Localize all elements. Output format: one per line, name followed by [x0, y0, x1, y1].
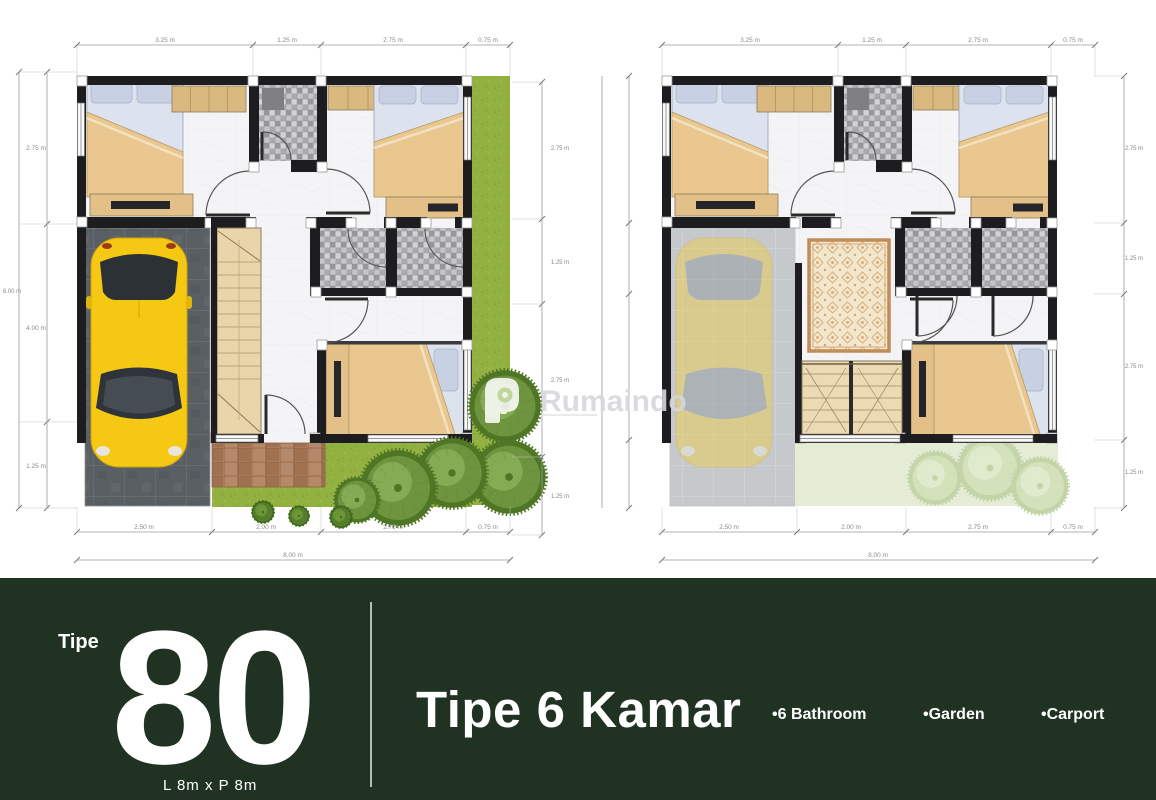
- svg-text:0.75 m: 0.75 m: [1063, 524, 1083, 531]
- svg-text:Rumaindo: Rumaindo: [540, 385, 687, 418]
- svg-text:2.75 m: 2.75 m: [383, 37, 403, 44]
- svg-text:0.75 m: 0.75 m: [478, 37, 498, 44]
- svg-text:2.75 m: 2.75 m: [968, 37, 988, 44]
- svg-text:Tipe: Tipe: [58, 631, 99, 653]
- svg-text:2.75 m: 2.75 m: [1125, 146, 1143, 152]
- svg-text:0.75 m: 0.75 m: [1063, 37, 1083, 44]
- svg-text:2.75 m: 2.75 m: [26, 145, 46, 152]
- svg-text:•Garden: •Garden: [923, 706, 985, 723]
- svg-text:2.75 m: 2.75 m: [383, 524, 403, 531]
- svg-text:2.75 m: 2.75 m: [551, 146, 569, 152]
- svg-text:1.25 m: 1.25 m: [862, 37, 882, 44]
- svg-text:1.25 m: 1.25 m: [1125, 470, 1143, 476]
- svg-text:8.00 m: 8.00 m: [3, 289, 21, 295]
- svg-text:2.00 m: 2.00 m: [841, 524, 861, 531]
- svg-text:1.25 m: 1.25 m: [1125, 256, 1143, 262]
- svg-text:L 8m x P 8m: L 8m x P 8m: [163, 777, 257, 794]
- svg-text:0.75 m: 0.75 m: [478, 524, 498, 531]
- svg-text:1.25 m: 1.25 m: [26, 463, 46, 470]
- svg-text:2.75 m: 2.75 m: [551, 378, 569, 384]
- svg-text:•Carport: •Carport: [1041, 706, 1105, 723]
- svg-text:Tipe 6 Kamar: Tipe 6 Kamar: [416, 681, 741, 738]
- svg-text:•6 Bathroom: •6 Bathroom: [772, 706, 867, 723]
- svg-text:4.00 m: 4.00 m: [26, 325, 46, 332]
- svg-text:80: 80: [111, 592, 312, 800]
- svg-text:1.25 m: 1.25 m: [277, 37, 297, 44]
- svg-text:2.75 m: 2.75 m: [968, 524, 988, 531]
- svg-text:3.25 m: 3.25 m: [155, 37, 175, 44]
- svg-text:2.00 m: 2.00 m: [256, 524, 276, 531]
- svg-text:8.00 m: 8.00 m: [283, 552, 303, 559]
- svg-text:1.25 m: 1.25 m: [551, 260, 569, 266]
- svg-text:1.25 m: 1.25 m: [551, 494, 569, 500]
- svg-text:3.25 m: 3.25 m: [740, 37, 760, 44]
- svg-text:2.50 m: 2.50 m: [134, 524, 154, 531]
- svg-text:2.50 m: 2.50 m: [719, 524, 739, 531]
- svg-text:2.75 m: 2.75 m: [1125, 364, 1143, 370]
- svg-text:8.00 m: 8.00 m: [868, 552, 888, 559]
